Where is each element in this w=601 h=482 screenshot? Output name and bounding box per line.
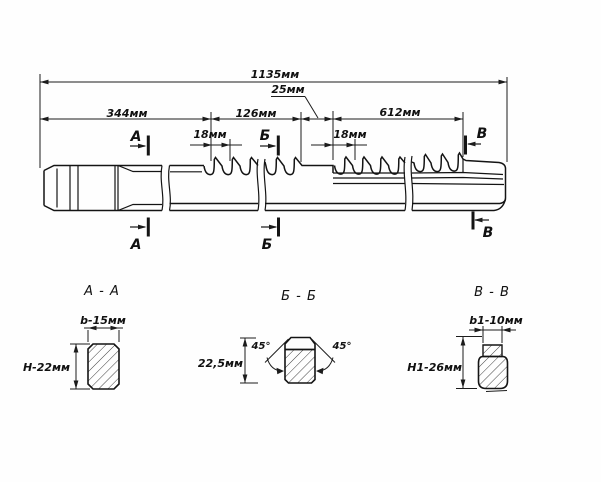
section-letter-a-top: А xyxy=(130,129,142,145)
section-marker-v-top: В xyxy=(464,126,487,155)
section-letter-v-bottom: В xyxy=(483,225,494,241)
section-aa-width-label: b-15мм xyxy=(80,314,126,327)
drawing-svg: 1135мм 344мм 126мм 612мм 25мм xyxy=(0,0,601,482)
section-aa-height-label: Н-22мм xyxy=(23,361,70,374)
dim-label-first-section: 126мм xyxy=(236,107,277,120)
section-letter-v-top: В xyxy=(477,126,488,142)
section-bb-height-label: 22,5мм xyxy=(198,357,243,370)
section-view-vv: В - В b1-10мм Н1-26мм xyxy=(407,285,522,392)
section-marker-b-top: Б xyxy=(260,128,280,156)
engineering-drawing-broach: 1135мм 344мм 126мм 612мм 25мм xyxy=(0,0,601,482)
main-view: 1135мм 344мм 126мм 612мм 25мм xyxy=(40,68,507,253)
dim-label-pitch-1: 18мм xyxy=(193,128,226,141)
dim-pitch-1: 18мм xyxy=(190,128,242,161)
section-aa-title: А - А xyxy=(83,284,120,299)
section-view-bb: Б - Б 22,5мм 45° 45° xyxy=(198,289,352,383)
section-bb-title: Б - Б xyxy=(281,289,317,304)
dim-chain: 344мм 126мм 612мм 25мм xyxy=(40,83,463,162)
dim-label-land: 25мм xyxy=(271,83,304,96)
section-vv-neck xyxy=(483,345,502,357)
section-bb-angle-left-label: 45° xyxy=(251,341,271,352)
section-marker-v-bottom: В xyxy=(472,212,494,242)
section-bb-angle-right-label: 45° xyxy=(332,341,352,352)
section-marker-a-bottom: А xyxy=(130,218,150,254)
section-marker-a-top: А xyxy=(130,129,150,156)
broach-shank xyxy=(44,166,162,211)
section-vv-height-label: Н1-26мм xyxy=(407,361,462,374)
section-vv-width-label: b1-10мм xyxy=(469,314,522,327)
section-view-aa: А - А b-15мм Н-22мм xyxy=(23,284,126,389)
dim-label-shank: 344мм xyxy=(107,107,148,120)
section-vv-title: В - В xyxy=(474,285,510,300)
dim-pitch-2: 18мм xyxy=(311,128,367,160)
broach-toothed-body xyxy=(170,153,506,211)
section-letter-b-bottom: Б xyxy=(262,237,273,253)
dim-label-working-section: 612мм xyxy=(380,106,421,119)
section-letter-b-top: Б xyxy=(260,128,271,144)
section-bb-angle-left: 45° xyxy=(251,339,289,374)
section-letter-a-bottom: А xyxy=(130,237,142,253)
section-vv-body xyxy=(479,357,508,389)
section-bb-angle-right: 45° xyxy=(312,339,352,374)
section-aa-profile xyxy=(88,344,119,389)
dim-label-pitch-2: 18мм xyxy=(333,128,366,141)
section-marker-b-bottom: Б xyxy=(261,218,280,254)
section-bb-hatch xyxy=(285,350,315,384)
dim-label-total: 1135мм xyxy=(251,68,300,81)
